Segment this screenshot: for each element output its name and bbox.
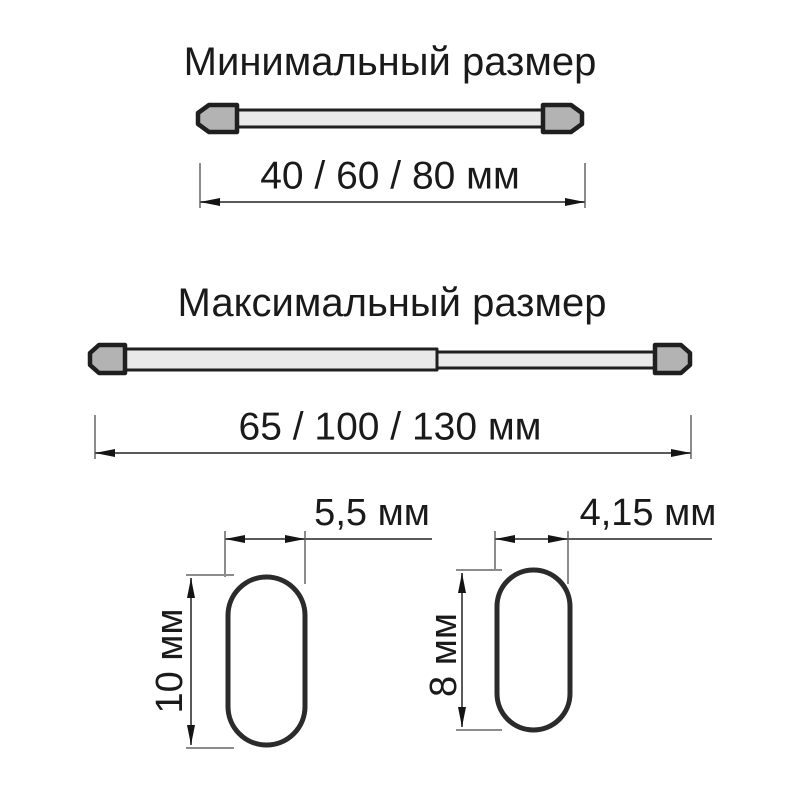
cross-section-outer — [186, 531, 432, 748]
min-rod-left-cap — [198, 105, 237, 132]
dimension-diagram: Минимальный размер 40 / 60 / 80 мм Макси… — [0, 0, 800, 800]
diagram-linework — [0, 0, 800, 800]
inner-height-dimension-label: 8 мм — [425, 613, 463, 697]
max-rod — [90, 345, 690, 373]
max-rod-outer-tube — [122, 349, 437, 370]
min-rod-tube — [230, 110, 550, 127]
max-rod-left-cap — [90, 345, 125, 373]
max-length-dimension-label: 65 / 100 / 130 мм — [239, 408, 542, 447]
min-rod — [198, 105, 582, 132]
outer-height-dimension-label: 10 мм — [151, 608, 189, 713]
min-rod-right-cap — [543, 105, 582, 132]
max-rod-right-cap — [655, 345, 690, 373]
min-length-dimension-label: 40 / 60 / 80 мм — [260, 157, 520, 196]
inner-oval-profile — [497, 570, 570, 730]
outer-width-dimension-label: 5,5 мм — [314, 494, 430, 532]
outer-oval-profile — [228, 577, 305, 745]
cross-section-inner — [456, 531, 712, 730]
inner-width-dimension-label: 4,15 мм — [580, 494, 717, 532]
max-size-title: Максимальный размер — [178, 283, 607, 323]
max-rod-inner-tube — [437, 352, 659, 368]
min-size-title: Минимальный размер — [184, 42, 597, 82]
